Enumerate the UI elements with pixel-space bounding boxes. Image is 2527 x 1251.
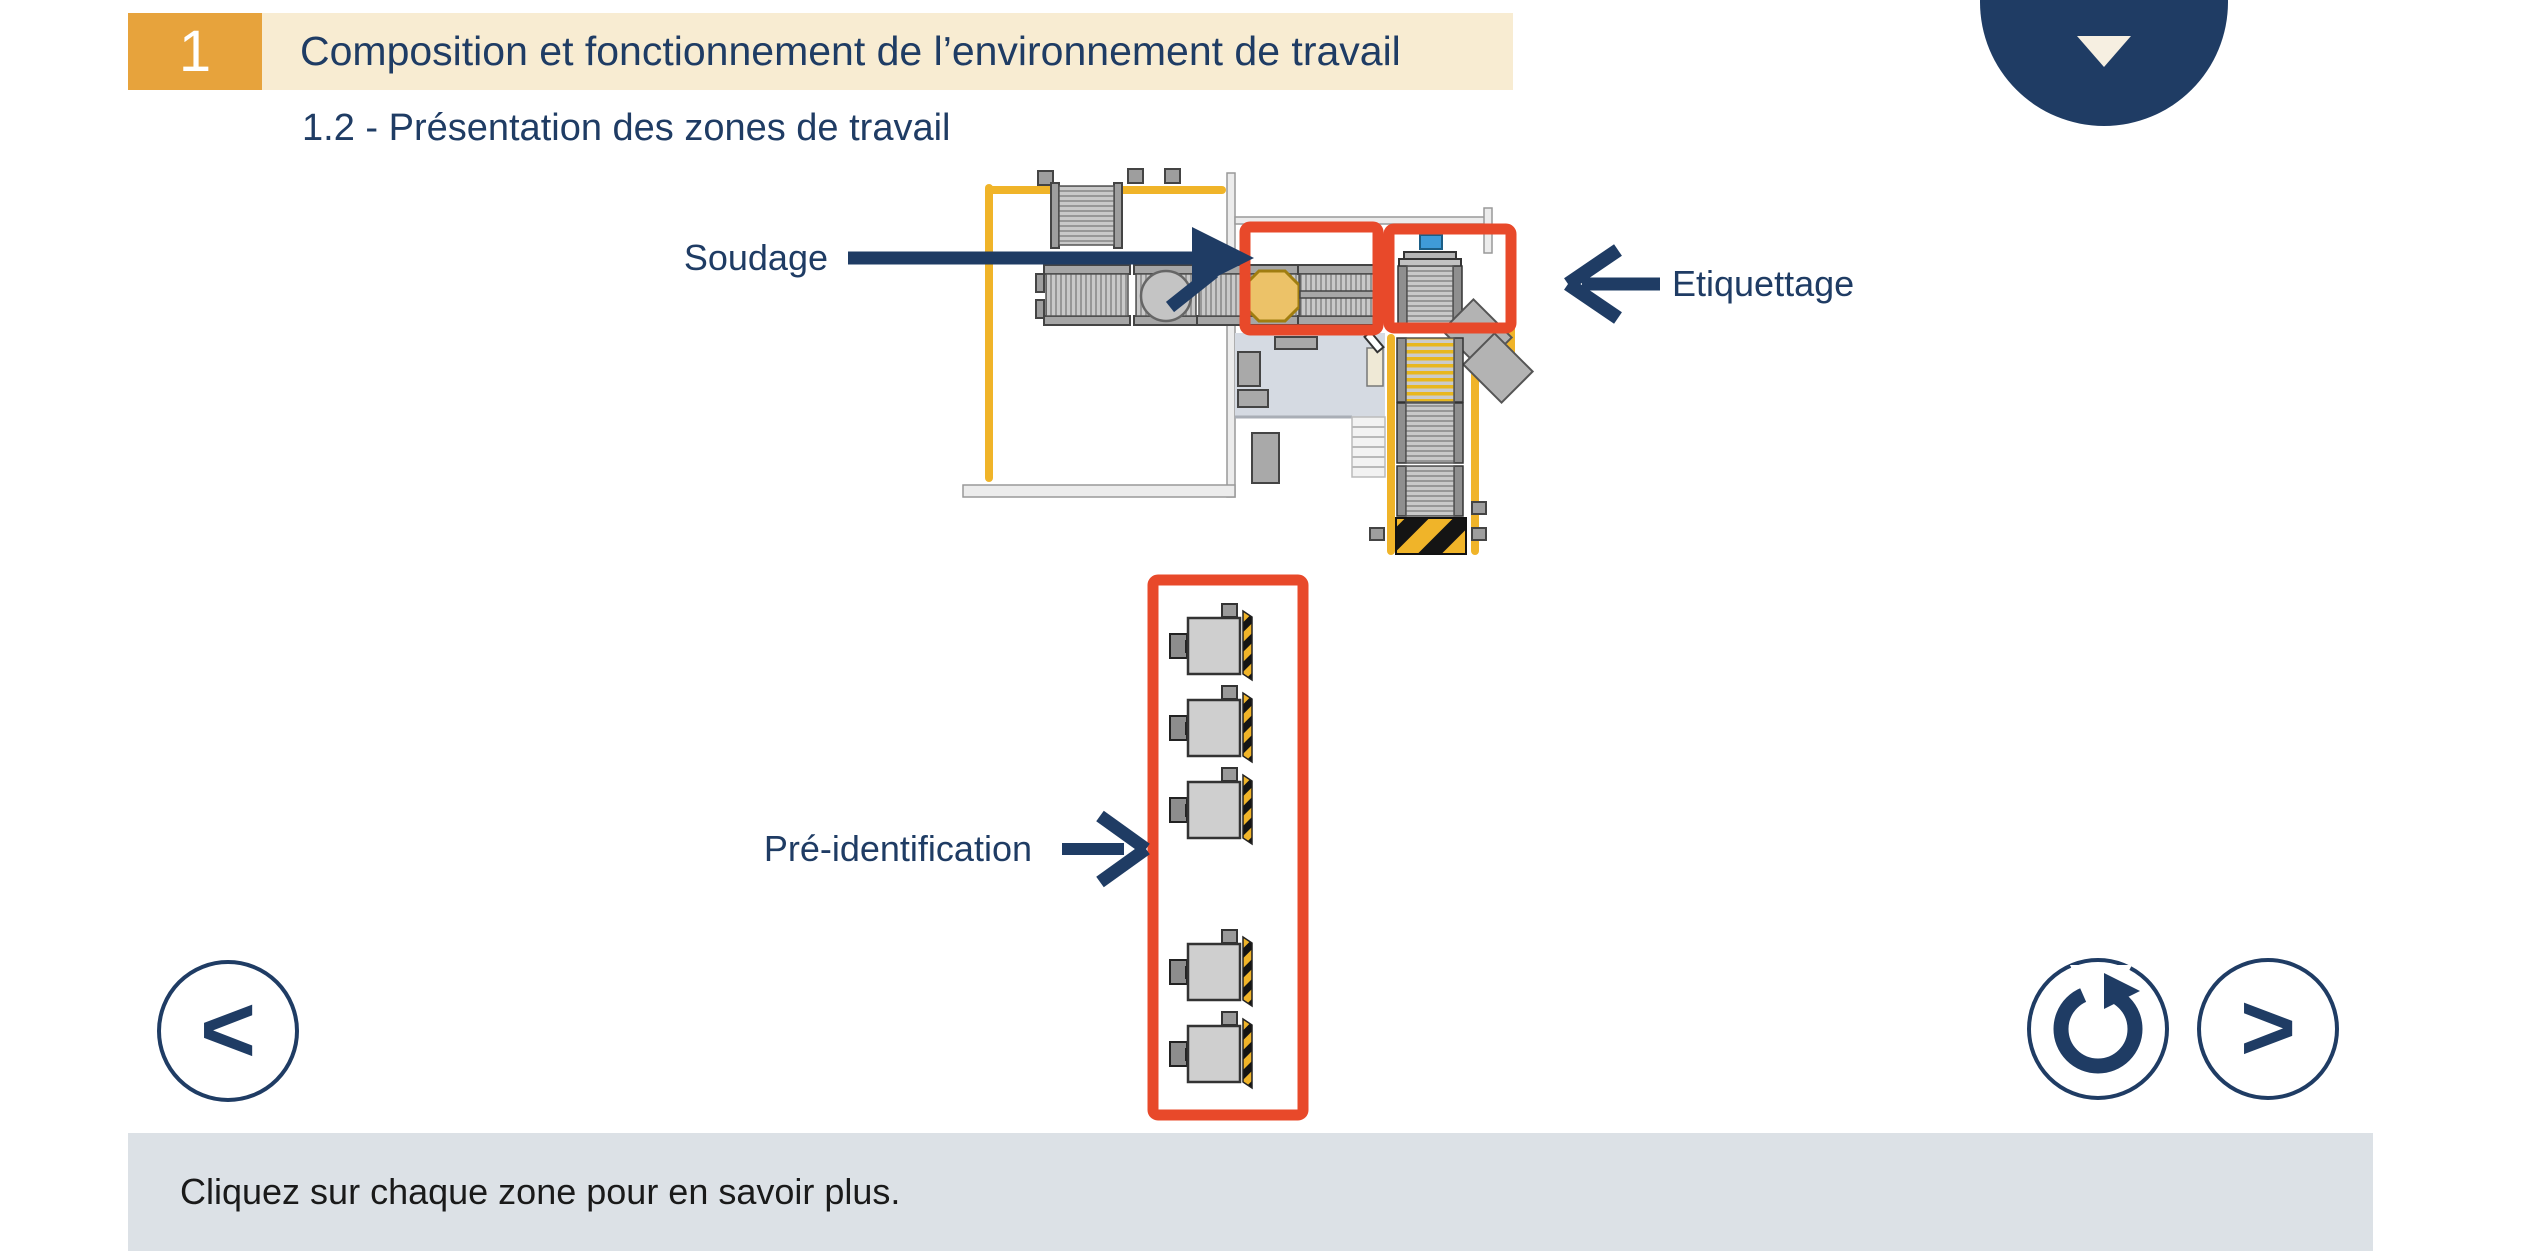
menu-tab[interactable] <box>1980 0 2228 126</box>
replay-icon <box>2031 962 2165 1096</box>
whiteboard <box>1367 348 1383 386</box>
stairs <box>1352 417 1385 477</box>
table <box>1252 433 1279 483</box>
unit-number-badge: 1 <box>128 13 262 90</box>
next-button[interactable]: > <box>2197 958 2339 1100</box>
conveyor-outlet-column <box>1396 338 1466 554</box>
prev-button[interactable]: < <box>157 960 299 1102</box>
rotary-machine <box>1141 271 1191 321</box>
pre-identification-arrow <box>1062 816 1146 882</box>
replay-button[interactable] <box>2027 958 2169 1100</box>
zone-etiquettage[interactable] <box>1389 229 1511 328</box>
desk <box>1275 337 1317 349</box>
hazard-stripe-pad <box>1396 518 1466 554</box>
footer-bar: Cliquez sur chaque zone pour en savoir p… <box>128 1133 2373 1251</box>
page-title: Composition et fonctionnement de l’envir… <box>262 13 1513 90</box>
page-subtitle: 1.2 - Présentation des zones de travail <box>302 106 951 150</box>
desk <box>1238 390 1268 407</box>
slide: 1 Composition et fonctionnement de l’env… <box>0 0 2527 1251</box>
soudage-arrow <box>848 227 1254 307</box>
zone-pre-identification[interactable] <box>1153 580 1303 1115</box>
office-room <box>1235 332 1385 483</box>
etiquettage-arrow <box>1568 250 1660 318</box>
zone-label-pre-identification: Pré-identification <box>700 827 1032 871</box>
footer-instruction: Cliquez sur chaque zone pour en savoir p… <box>180 1171 900 1213</box>
walls <box>963 173 1492 497</box>
desk <box>1238 352 1260 386</box>
conveyor-inlet <box>1051 183 1122 248</box>
zone-label-soudage: Soudage <box>640 236 828 280</box>
zone-label-etiquettage: Etiquettage <box>1672 262 1854 306</box>
zone-soudage[interactable] <box>1245 227 1378 330</box>
